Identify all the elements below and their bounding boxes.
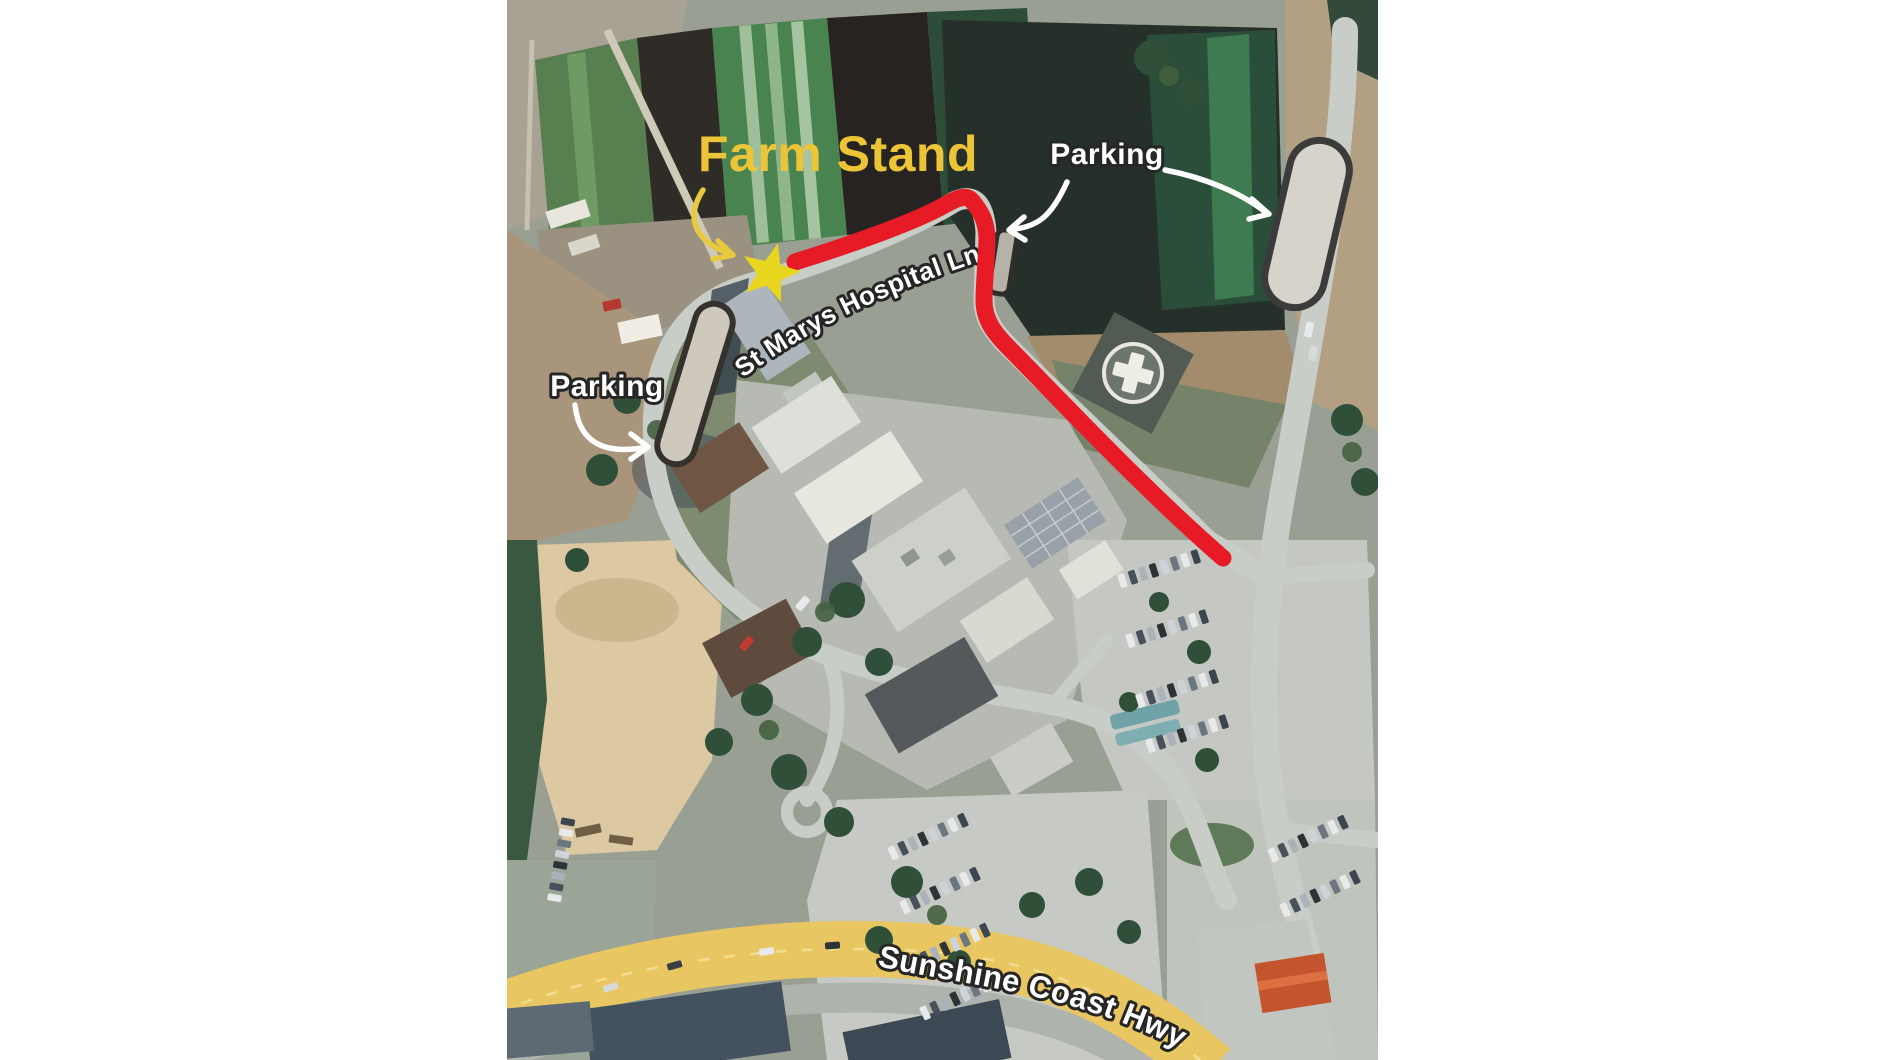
satellite-map: St Marys Hospital Ln Sunshine Coast Hwy bbox=[507, 0, 1378, 1060]
parking-label-top-right: Parking bbox=[1050, 138, 1164, 171]
page-canvas: St Marys Hospital Ln Sunshine Coast Hwy bbox=[0, 0, 1885, 1060]
farm-stand-label: Farm Stand bbox=[698, 126, 978, 182]
parking-label-left: Parking bbox=[550, 370, 664, 403]
